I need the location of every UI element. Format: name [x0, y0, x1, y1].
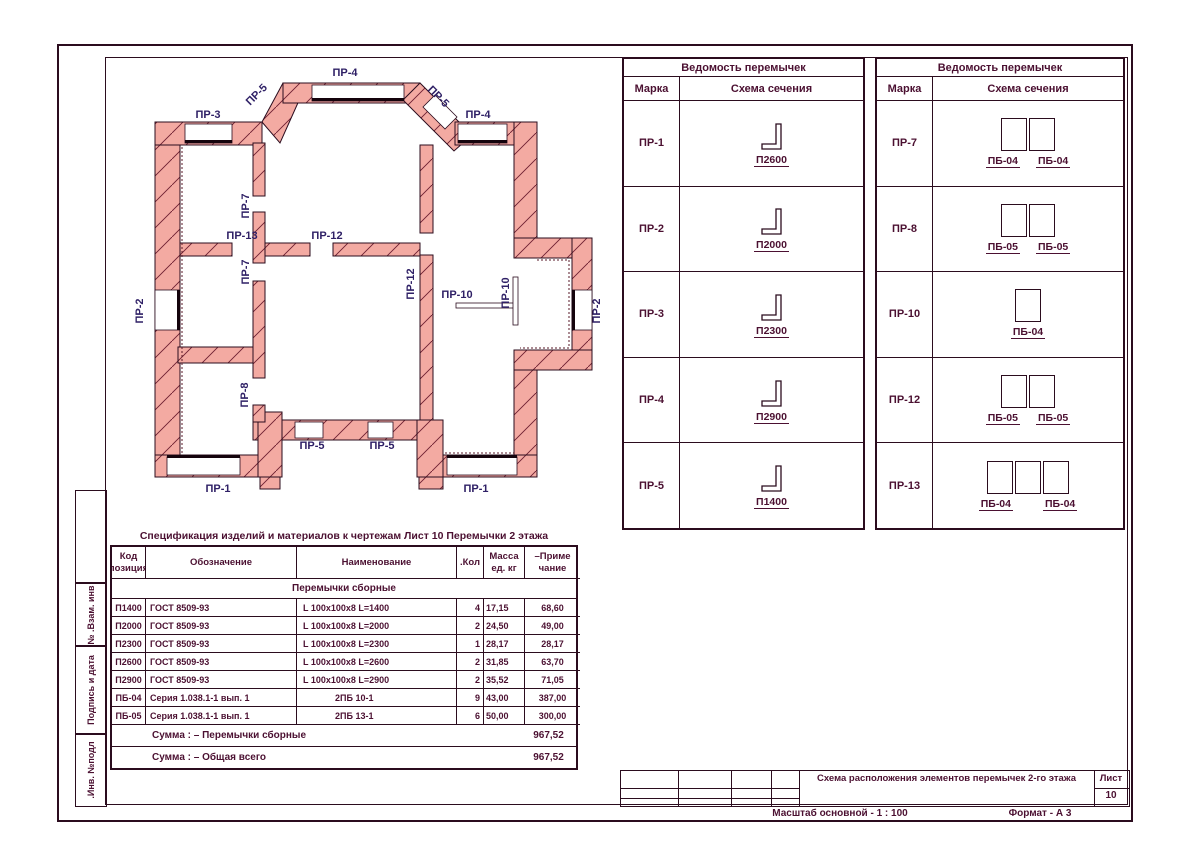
spec-row-ПБ-05: ПБ-05Серия 1.038.1-1 вып. 12ПБ 13-1650,0…	[112, 707, 576, 725]
angle-section-icon	[755, 462, 789, 496]
sheet-label: Лист	[1094, 773, 1128, 784]
lintel-row-ПР-8: ПР-8ПБ-05ПБ-05	[877, 187, 1123, 273]
plan-label-ПР-4: ПР-4	[465, 109, 491, 121]
spec-cell: П1400	[112, 599, 146, 617]
lintel-row-ПР-4: ПР-4П2900	[624, 358, 863, 444]
angle-section-icon	[755, 120, 789, 154]
sidebar-label: № .Взам. инв	[86, 585, 96, 644]
lintel-block-icon	[1015, 289, 1041, 322]
sheet-number: 10	[1094, 790, 1128, 801]
angle-mark-label: П2300	[754, 325, 789, 338]
plan-label-ПР-13: ПР-13	[226, 230, 257, 242]
lintel-section-schema: ПБ-05ПБ-05	[933, 187, 1123, 272]
lintel-mark: ПР-12	[877, 358, 933, 443]
block-mark-label: ПБ-04	[1043, 498, 1077, 511]
spec-cell: 28,17	[484, 635, 525, 653]
lintel-block-icon	[1043, 461, 1069, 494]
plan-label-ПР-4: ПР-4	[332, 67, 358, 79]
lintel-rows: ПР-1П2600ПР-2П2000ПР-3П2300ПР-4П2900ПР-5…	[624, 101, 863, 528]
plan-label-ПР-3: ПР-3	[195, 109, 220, 121]
plan-label-ПР-8: ПР-8	[239, 382, 251, 407]
lintel-block-icon	[1001, 204, 1027, 237]
lintel-block-icon	[1001, 118, 1027, 151]
lintel-blocks	[1015, 289, 1041, 322]
spec-row-П2000: П2000ГОСТ 8509-93L 100x100x8 L=2000224,5…	[112, 617, 576, 635]
spec-cell: L 100x100x8 L=2300	[297, 635, 457, 653]
lintel-row-ПР-5: ПР-5П1400	[624, 443, 863, 528]
scale-note: Масштаб основной - 1 : 100	[700, 808, 980, 819]
lintel-block-icon	[1029, 375, 1055, 408]
lintel-mark: ПР-5	[624, 443, 680, 528]
col-header-schema: Схема сечения	[680, 77, 863, 100]
sidebar-cell-podpis: Подпись и дата	[75, 645, 107, 735]
spec-cell: L 100x100x8 L=2900	[297, 671, 457, 689]
angle-section-icon	[755, 377, 789, 411]
spec-cell: L 100x100x8 L=2000	[297, 617, 457, 635]
lintel-section-schema: ПБ-04	[933, 272, 1123, 357]
spec-cell: 2	[457, 653, 484, 671]
lintel-mark: ПР-13	[877, 443, 933, 528]
spec-cell: L 100x100x8 L=2600	[297, 653, 457, 671]
lintel-mark: ПР-3	[624, 272, 680, 357]
lintel-mark: ПР-10	[877, 272, 933, 357]
col-header-schema: Схема сечения	[933, 77, 1123, 100]
spec-cell: 71,05	[525, 671, 580, 689]
spec-sum-row: Сумма : – Общая всего967,52	[112, 747, 576, 768]
sum-value: 967,52	[521, 747, 576, 768]
spec-cell: 31,85	[484, 653, 525, 671]
col-header-mark: Марка	[624, 77, 680, 100]
spec-row-П1400: П1400ГОСТ 8509-93L 100x100x8 L=1400417,1…	[112, 599, 576, 617]
lintel-row-ПР-7: ПР-7ПБ-04ПБ-04	[877, 101, 1123, 187]
block-mark-label: ПБ-04	[1036, 155, 1070, 168]
block-mark-label: ПБ-05	[986, 412, 1020, 425]
spec-cell: 43,00	[484, 689, 525, 707]
spec-cell: 2	[457, 671, 484, 689]
lintel-table-title: Ведомость перемычек	[624, 59, 863, 77]
spec-cell: 300,00	[525, 707, 580, 725]
spec-sum-row: Сумма : – Перемычки сборные967,52	[112, 725, 576, 747]
lintel-table-right: Ведомость перемычек Марка Схема сечения …	[875, 57, 1125, 530]
lintel-section-schema: П1400	[680, 443, 863, 528]
spec-cell: Серия 1.038.1-1 вып. 1	[146, 707, 297, 725]
spec-table: Спецификация изделий и материалов к черт…	[110, 530, 578, 770]
spec-cell: 2ПБ 10-1	[297, 689, 457, 707]
sidebar-cell-vzam: № .Взам. инв	[75, 582, 107, 647]
spec-sums: Сумма : – Перемычки сборные967,52Сумма :…	[112, 725, 576, 768]
lintel-block-icon	[1001, 375, 1027, 408]
angle-section-icon	[755, 205, 789, 239]
spec-cell: 63,70	[525, 653, 580, 671]
lintel-block-icon	[987, 461, 1013, 494]
spec-row-П2600: П2600ГОСТ 8509-93L 100x100x8 L=2600231,8…	[112, 653, 576, 671]
lintel-section-schema: П2300	[680, 272, 863, 357]
plan-label-ПР-10: ПР-10	[500, 277, 512, 308]
spec-cell: L 100x100x8 L=1400	[297, 599, 457, 617]
plan-label-ПР-5: ПР-5	[244, 82, 270, 108]
title-block: Схема расположения элементов перемычек 2…	[620, 770, 1130, 807]
lintel-mark: ПР-2	[624, 187, 680, 272]
lintel-block-icon	[1029, 204, 1055, 237]
angle-mark-label: П2900	[754, 411, 789, 424]
spec-cell: П2300	[112, 635, 146, 653]
spec-section-header: Перемычки сборные	[112, 579, 576, 599]
spec-cell: 6	[457, 707, 484, 725]
block-mark-label: ПБ-04	[1011, 326, 1045, 339]
block-mark-label: ПБ-05	[1036, 241, 1070, 254]
lintel-mark: ПР-1	[624, 101, 680, 186]
lintel-section-schema: ПБ-04ПБ-04	[933, 101, 1123, 186]
lintel-row-ПР-1: ПР-1П2600	[624, 101, 863, 187]
lintel-section-schema: П2000	[680, 187, 863, 272]
spec-cell: 387,00	[525, 689, 580, 707]
lintel-mark: ПР-8	[877, 187, 933, 272]
lintel-section-schema: П2600	[680, 101, 863, 186]
spec-cell: ПБ-04	[112, 689, 146, 707]
spec-cell: 35,52	[484, 671, 525, 689]
plan-label-ПР-2: ПР-2	[134, 298, 146, 323]
lintel-block-icon	[1029, 118, 1055, 151]
spec-cell: 9	[457, 689, 484, 707]
drawing-title: Схема расположения элементов перемычек 2…	[799, 773, 1094, 784]
lintel-rows: ПР-7ПБ-04ПБ-04ПР-8ПБ-05ПБ-05ПР-10ПБ-04ПР…	[877, 101, 1123, 528]
plan-label-ПР-5: ПР-5	[299, 440, 324, 452]
lintel-blocks	[1001, 375, 1055, 408]
plan-label-ПР-1: ПР-1	[205, 483, 230, 495]
sidebar-label: Подпись и дата	[86, 655, 96, 725]
sidebar-label: .Инв. №подл	[86, 741, 96, 798]
angle-section-icon	[755, 291, 789, 325]
block-mark-label: ПБ-05	[986, 241, 1020, 254]
plan-label-ПР-5: ПР-5	[369, 440, 394, 452]
spec-cell: 4	[457, 599, 484, 617]
spec-cell: ГОСТ 8509-93	[146, 635, 297, 653]
plan-label-ПР-1: ПР-1	[463, 483, 488, 495]
spec-cell: П2600	[112, 653, 146, 671]
sidebar-cell-empty	[75, 490, 107, 584]
lintel-section-schema: ПБ-05ПБ-05	[933, 358, 1123, 443]
spec-cell: ГОСТ 8509-93	[146, 599, 297, 617]
spec-cell: 24,50	[484, 617, 525, 635]
col-header-mark: Марка	[877, 77, 933, 100]
lintel-section-schema: ПБ-04ПБ-04	[933, 443, 1123, 528]
spec-header-row: Кодпозиция Обозначение Наименование .Кол…	[112, 547, 576, 579]
plan-label-ПР-7: ПР-7	[240, 259, 252, 284]
lintel-row-ПР-13: ПР-13ПБ-04ПБ-04	[877, 443, 1123, 528]
spec-cell: ГОСТ 8509-93	[146, 671, 297, 689]
lintel-table-title: Ведомость перемычек	[877, 59, 1123, 77]
plan-label-ПР-12: ПР-12	[405, 268, 417, 299]
spec-cell: 1	[457, 635, 484, 653]
floor-plan: ПР-4ПР-5ПР-5ПР-3ПР-4ПР-7ПР-13ПР-12ПР-7ПР…	[120, 55, 640, 515]
spec-cell: ПБ-05	[112, 707, 146, 725]
lintel-section-schema: П2900	[680, 358, 863, 443]
plan-label-ПР-7: ПР-7	[240, 193, 252, 218]
block-mark-label: ПБ-05	[1036, 412, 1070, 425]
lintel-mark: ПР-4	[624, 358, 680, 443]
sum-label: Сумма : – Общая всего	[112, 747, 521, 768]
lintel-blocks	[1001, 204, 1055, 237]
lintel-row-ПР-3: ПР-3П2300	[624, 272, 863, 358]
spec-cell: 28,17	[525, 635, 580, 653]
angle-mark-label: П2600	[754, 154, 789, 167]
spec-body: П1400ГОСТ 8509-93L 100x100x8 L=1400417,1…	[112, 599, 576, 725]
spec-row-ПБ-04: ПБ-04Серия 1.038.1-1 вып. 12ПБ 10-1943,0…	[112, 689, 576, 707]
spec-cell: 2ПБ 13-1	[297, 707, 457, 725]
sum-label: Сумма : – Перемычки сборные	[112, 725, 521, 746]
lintel-blocks	[1001, 118, 1055, 151]
lintel-table-left: Ведомость перемычек Марка Схема сечения …	[622, 57, 865, 530]
spec-cell: П2000	[112, 617, 146, 635]
spec-row-П2300: П2300ГОСТ 8509-93L 100x100x8 L=2300128,1…	[112, 635, 576, 653]
plan-label-ПР-2: ПР-2	[591, 298, 603, 323]
spec-cell: 17,15	[484, 599, 525, 617]
spec-cell: Серия 1.038.1-1 вып. 1	[146, 689, 297, 707]
spec-cell: ГОСТ 8509-93	[146, 617, 297, 635]
lintel-row-ПР-2: ПР-2П2000	[624, 187, 863, 273]
lintel-blocks	[987, 461, 1069, 494]
spec-row-П2900: П2900ГОСТ 8509-93L 100x100x8 L=2900235,5…	[112, 671, 576, 689]
spec-cell: 2	[457, 617, 484, 635]
spec-cell: ГОСТ 8509-93	[146, 653, 297, 671]
spec-table-title: Спецификация изделий и материалов к черт…	[110, 530, 578, 545]
block-mark-label: ПБ-04	[986, 155, 1020, 168]
plan-label-ПР-10: ПР-10	[441, 289, 472, 301]
lintel-row-ПР-12: ПР-12ПБ-05ПБ-05	[877, 358, 1123, 444]
block-mark-label: ПБ-04	[979, 498, 1013, 511]
sum-value: 967,52	[521, 725, 576, 746]
plan-label-ПР-12: ПР-12	[311, 230, 342, 242]
angle-mark-label: П1400	[754, 496, 789, 509]
spec-cell: П2900	[112, 671, 146, 689]
spec-cell: 49,00	[525, 617, 580, 635]
lintel-mark: ПР-7	[877, 101, 933, 186]
lintel-row-ПР-10: ПР-10ПБ-04	[877, 272, 1123, 358]
lintel-block-icon	[1015, 461, 1041, 494]
angle-mark-label: П2000	[754, 239, 789, 252]
sidebar-cell-inv: .Инв. №подл	[75, 733, 107, 807]
spec-cell: 68,60	[525, 599, 580, 617]
spec-cell: 50,00	[484, 707, 525, 725]
format-note: Формат - А 3	[960, 808, 1120, 819]
